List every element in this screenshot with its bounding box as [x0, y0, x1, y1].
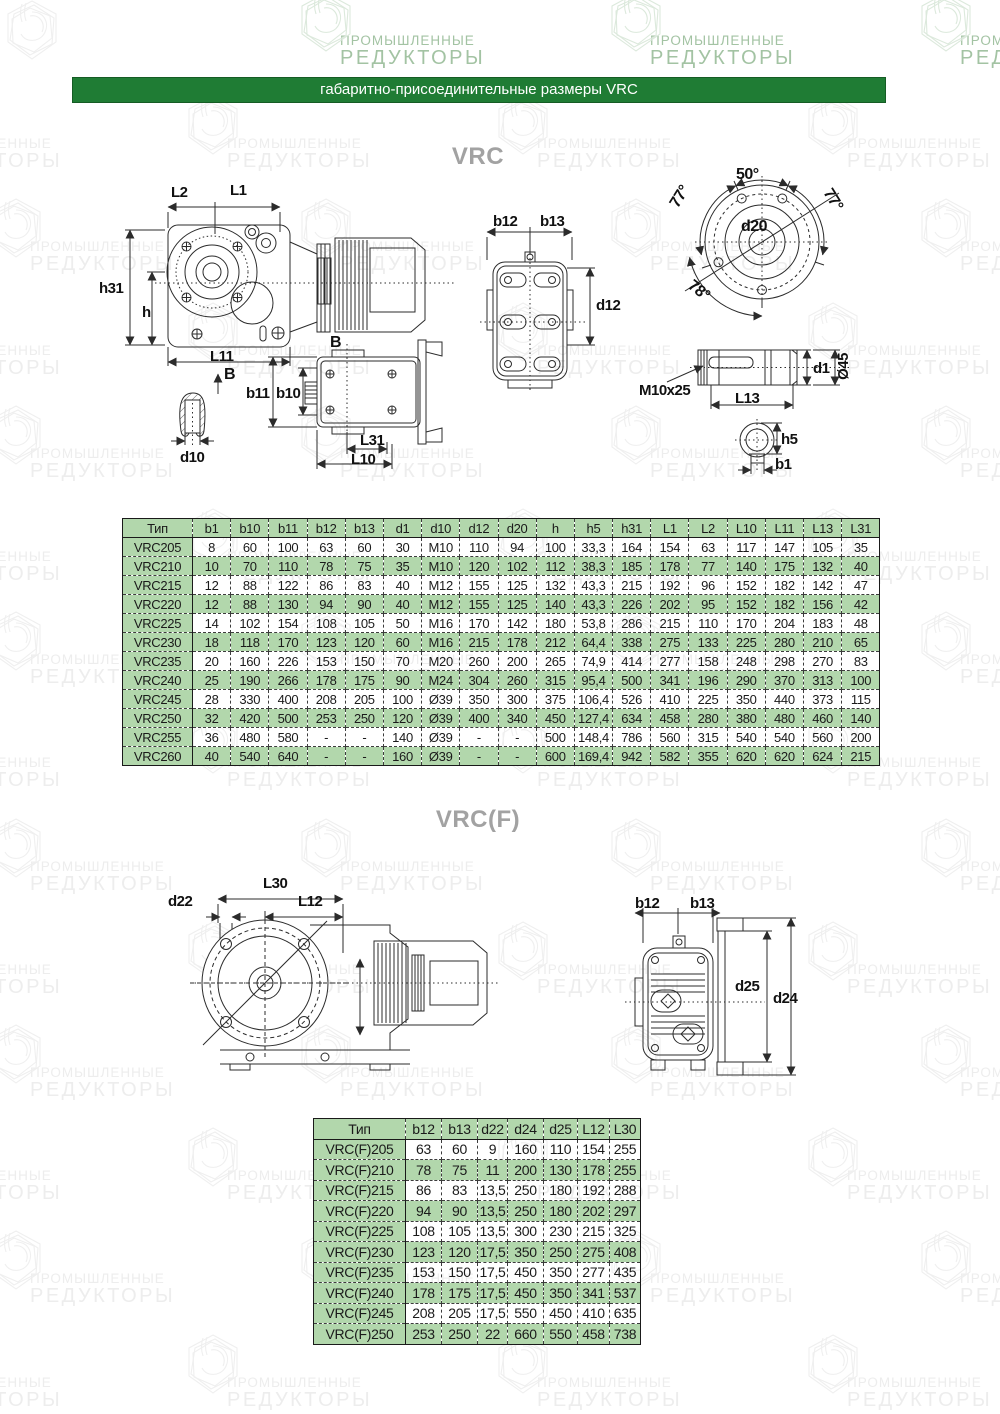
value-cell: 215 — [613, 576, 651, 595]
value-cell: 152 — [727, 576, 765, 595]
value-cell: 178 — [307, 671, 345, 690]
value-cell: 540 — [727, 728, 765, 747]
value-cell: 313 — [804, 671, 842, 690]
value-cell: 408 — [610, 1242, 641, 1263]
value-cell: 178 — [498, 633, 536, 652]
value-cell: 192 — [578, 1180, 610, 1201]
value-cell: 130 — [269, 595, 307, 614]
value-cell: M16 — [422, 614, 460, 633]
watermark: ПРОМЫШЛЕННЫЕ РЕДУКТОРЫ — [650, 34, 825, 69]
value-cell: 115 — [842, 690, 880, 709]
dim-label-b1: b1 — [775, 456, 792, 473]
type-cell: VRC240 — [123, 671, 193, 690]
type-cell: VRC(F)235 — [314, 1262, 406, 1283]
table-row-VRC(F)205: VRC(F)20563609160110154255 — [314, 1139, 641, 1160]
brand-logo-icon — [181, 1125, 245, 1189]
type-cell: VRC(F)245 — [314, 1303, 406, 1324]
value-cell: 158 — [689, 652, 727, 671]
value-cell: 17,5 — [478, 1262, 508, 1283]
dim-label-b12-f: b12 — [635, 895, 659, 912]
table-row-VRC(F)210: VRC(F)210787511200130178255 — [314, 1160, 641, 1181]
brand-logo-icon — [294, 0, 358, 54]
brand-logo-icon — [914, 196, 978, 260]
value-cell: 225 — [727, 633, 765, 652]
watermark-line2: РЕДУКТОРЫ — [0, 564, 92, 585]
watermark-line2: РЕДУКТОРЫ — [847, 1183, 1000, 1204]
value-cell: 215 — [842, 747, 880, 766]
value-cell: 50 — [383, 614, 421, 633]
column-header-h5: h5 — [574, 519, 612, 538]
value-cell: 120 — [383, 709, 421, 728]
value-cell: Ø39 — [422, 709, 460, 728]
value-cell: 102 — [498, 557, 536, 576]
column-header-d12: d12 — [460, 519, 498, 538]
vrc-dimensions-table: Типb1b10b11b12b13d1d10d12d20hh5h31L1L2L1… — [122, 518, 880, 766]
column-header-d1: d1 — [383, 519, 421, 538]
value-cell: 77 — [689, 557, 727, 576]
value-cell: M24 — [422, 671, 460, 690]
drawing-vrc-rear-view: b12 b13 d12 — [478, 205, 648, 395]
value-cell: 63 — [406, 1139, 442, 1160]
column-header-d20: d20 — [498, 519, 536, 538]
drawing-vrc-shaft-section: h5 b1 — [725, 415, 815, 480]
value-cell: 253 — [307, 709, 345, 728]
value-cell: 460 — [804, 709, 842, 728]
value-cell: 43,3 — [574, 576, 612, 595]
value-cell: 94 — [406, 1201, 442, 1222]
type-cell: VRC230 — [123, 633, 193, 652]
type-cell: VRC(F)205 — [314, 1139, 406, 1160]
value-cell: 420 — [231, 709, 269, 728]
table-row-VRC(F)230: VRC(F)23012312017,5350250275408 — [314, 1242, 641, 1263]
value-cell: 288 — [610, 1180, 641, 1201]
watermark: ПРОМЫШЛЕННЫЕ РЕДУКТОРЫ — [537, 1376, 712, 1411]
brand-logo-icon — [0, 816, 48, 880]
value-cell: 142 — [804, 576, 842, 595]
watermark-line2: РЕДУКТОРЫ — [960, 461, 1000, 482]
value-cell: 14 — [193, 614, 231, 633]
value-cell: 200 — [498, 652, 536, 671]
value-cell: 255 — [610, 1160, 641, 1181]
value-cell: 9 — [478, 1139, 508, 1160]
watermark-line1: ПРОМЫШЛЕННЫЕ — [960, 34, 1000, 48]
value-cell: 160 — [231, 652, 269, 671]
value-cell: 38,3 — [574, 557, 612, 576]
value-cell: 192 — [651, 576, 689, 595]
value-cell: 127,4 — [574, 709, 612, 728]
watermark-line2: РЕДУКТОРЫ — [650, 48, 825, 69]
table-row-VRC220: VRC2201288130949040M1215512514043,322620… — [123, 595, 880, 614]
value-cell: 350 — [544, 1283, 578, 1304]
value-cell: 120 — [460, 557, 498, 576]
value-cell: 90 — [383, 671, 421, 690]
watermark-line2: РЕДУКТОРЫ — [847, 358, 1000, 379]
watermark-line2: РЕДУКТОРЫ — [30, 1286, 205, 1307]
watermark-line1: ПРОМЫШЛЕННЫЕ — [847, 1376, 1000, 1390]
watermark: ПРОМЫШЛЕННЫЕ РЕДУКТОРЫ — [847, 137, 1000, 172]
value-cell: 340 — [498, 709, 536, 728]
value-cell: 620 — [727, 747, 765, 766]
brand-logo-icon — [914, 403, 978, 467]
dim-label-d1: d1 — [813, 360, 830, 377]
value-cell: 25 — [193, 671, 231, 690]
value-cell: - — [307, 728, 345, 747]
value-cell: 341 — [651, 671, 689, 690]
value-cell: 105 — [442, 1221, 478, 1242]
type-cell: VRC245 — [123, 690, 193, 709]
value-cell: 125 — [498, 595, 536, 614]
watermark: ПРОМЫШЛЕННЫЕ РЕДУКТОРЫ — [0, 1376, 92, 1411]
value-cell: 200 — [508, 1160, 544, 1181]
type-cell: VRC220 — [123, 595, 193, 614]
value-cell: 370 — [765, 671, 803, 690]
watermark-line1: ПРОМЫШЛЕННЫЕ — [650, 34, 825, 48]
column-header-L10: L10 — [727, 519, 765, 538]
watermark-line1: ПРОМЫШЛЕННЫЕ — [650, 860, 825, 874]
value-cell: 110 — [544, 1139, 578, 1160]
value-cell: 105 — [345, 614, 383, 633]
value-cell: 35 — [842, 538, 880, 557]
value-cell: 53,8 — [574, 614, 612, 633]
value-cell: 204 — [765, 614, 803, 633]
vrc-table-header: Типb1b10b11b12b13d1d10d12d20hh5h31L1L2L1… — [123, 519, 880, 538]
column-header-d10: d10 — [422, 519, 460, 538]
value-cell: 226 — [269, 652, 307, 671]
value-cell: 255 — [610, 1139, 641, 1160]
value-cell: 90 — [442, 1201, 478, 1222]
watermark-line2: РЕДУКТОРЫ — [960, 667, 1000, 688]
type-cell: VRC225 — [123, 614, 193, 633]
angle-label-50: 50° — [736, 166, 759, 184]
dim-label-d20: d20 — [741, 218, 767, 236]
type-cell: VRC260 — [123, 747, 193, 766]
value-cell: 304 — [460, 671, 498, 690]
type-cell: VRC250 — [123, 709, 193, 728]
value-cell: 183 — [804, 614, 842, 633]
dim-label-d22: d22 — [168, 893, 192, 910]
value-cell: M10 — [422, 557, 460, 576]
value-cell: 100 — [269, 538, 307, 557]
table-row-VRC215: VRC2151288122868340M1215512513243,321519… — [123, 576, 880, 595]
section-title-vrc: VRC — [378, 143, 578, 171]
watermark-line1: ПРОМЫШЛЕННЫЕ — [340, 34, 515, 48]
value-cell: 410 — [578, 1303, 610, 1324]
value-cell: 350 — [508, 1242, 544, 1263]
brand-logo-icon — [914, 1022, 978, 1086]
value-cell: 117 — [727, 538, 765, 557]
value-cell: 132 — [804, 557, 842, 576]
dim-label-L10: L10 — [351, 451, 375, 468]
value-cell: M12 — [422, 595, 460, 614]
watermark-line2: РЕДУКТОРЫ — [960, 1286, 1000, 1307]
vrcf-side-view-linework — [160, 855, 510, 1100]
column-header-L1: L1 — [651, 519, 689, 538]
value-cell: - — [460, 747, 498, 766]
column-header-b12: b12 — [406, 1119, 442, 1140]
drawing-vrcf-side-view: L30 d22 L12 — [160, 855, 510, 1100]
drawing-vrc-key-section: d10 — [150, 385, 225, 480]
value-cell: 250 — [544, 1242, 578, 1263]
watermark-line1: ПРОМЫШЛЕННЫЕ — [847, 137, 1000, 151]
watermark: ПРОМЫШЛЕННЫЕ РЕДУКТОРЫ — [960, 653, 1000, 688]
value-cell: 12 — [193, 576, 231, 595]
value-cell: 86 — [307, 576, 345, 595]
value-cell: 450 — [508, 1283, 544, 1304]
vrcf-table-header: Типb12b13d22d24d25L12L30 — [314, 1119, 641, 1140]
watermark-line1: ПРОМЫШЛЕННЫЕ — [0, 1169, 92, 1183]
value-cell: - — [345, 747, 383, 766]
value-cell: 133 — [689, 633, 727, 652]
value-cell: 660 — [508, 1324, 544, 1345]
watermark-line1: ПРОМЫШЛЕННЫЕ — [0, 137, 92, 151]
table-row-VRC(F)240: VRC(F)24017817517,5450350341537 — [314, 1283, 641, 1304]
value-cell: 208 — [307, 690, 345, 709]
value-cell: 275 — [578, 1242, 610, 1263]
value-cell: 64,4 — [574, 633, 612, 652]
table-row-VRC225: VRC2251410215410810550M1617014218053,828… — [123, 614, 880, 633]
catalog-page: ПРОМЫШЛЕННЫЕ РЕДУКТОРЫ ПРОМЫШЛЕННЫЕ РЕДУ… — [0, 0, 1000, 1414]
brand-logo-icon — [801, 1332, 865, 1396]
watermark-line1: ПРОМЫШЛЕННЫЕ — [227, 137, 402, 151]
value-cell: 120 — [345, 633, 383, 652]
value-cell: 250 — [508, 1201, 544, 1222]
watermark: ПРОМЫШЛЕННЫЕ РЕДУКТОРЫ — [0, 137, 92, 172]
value-cell: 182 — [765, 595, 803, 614]
value-cell: 580 — [269, 728, 307, 747]
value-cell: 100 — [842, 671, 880, 690]
value-cell: 175 — [442, 1283, 478, 1304]
value-cell: 180 — [544, 1180, 578, 1201]
value-cell: Ø39 — [422, 747, 460, 766]
value-cell: 88 — [231, 595, 269, 614]
value-cell: 315 — [536, 671, 574, 690]
watermark-line2: РЕДУКТОРЫ — [227, 1390, 402, 1411]
value-cell: 230 — [544, 1221, 578, 1242]
brand-logo-icon — [801, 1125, 865, 1189]
column-header-b10: b10 — [231, 519, 269, 538]
value-cell: 480 — [231, 728, 269, 747]
table-row-VRC(F)235: VRC(F)23515315017,5450350277435 — [314, 1262, 641, 1283]
value-cell: 550 — [544, 1324, 578, 1345]
value-cell: 100 — [383, 690, 421, 709]
value-cell: 205 — [345, 690, 383, 709]
value-cell: 78 — [307, 557, 345, 576]
value-cell: 110 — [269, 557, 307, 576]
value-cell: - — [307, 747, 345, 766]
value-cell: 350 — [727, 690, 765, 709]
value-cell: 13,5 — [478, 1180, 508, 1201]
watermark-line1: ПРОМЫШЛЕННЫЕ — [537, 1376, 712, 1390]
value-cell: 225 — [689, 690, 727, 709]
value-cell: 260 — [498, 671, 536, 690]
watermark-line2: РЕДУКТОРЫ — [0, 977, 92, 998]
value-cell: 560 — [651, 728, 689, 747]
value-cell: 122 — [269, 576, 307, 595]
watermark: ПРОМЫШЛЕННЫЕ РЕДУКТОРЫ — [227, 137, 402, 172]
value-cell: 635 — [610, 1303, 641, 1324]
value-cell: 298 — [765, 652, 803, 671]
value-cell: 338 — [613, 633, 651, 652]
watermark: ПРОМЫШЛЕННЫЕ РЕДУКТОРЫ — [0, 963, 92, 998]
drawing-vrcf-rear-view: b12 b13 d25 d24 — [605, 878, 870, 1093]
value-cell: - — [498, 747, 536, 766]
watermark-line1: ПРОМЫШЛЕННЫЕ — [960, 1066, 1000, 1080]
watermark-line2: РЕДУКТОРЫ — [847, 1390, 1000, 1411]
value-cell: 150 — [345, 652, 383, 671]
value-cell: 75 — [345, 557, 383, 576]
value-cell: 212 — [536, 633, 574, 652]
value-cell: - — [460, 728, 498, 747]
watermark-line1: ПРОМЫШЛЕННЫЕ — [960, 1272, 1000, 1286]
value-cell: 458 — [651, 709, 689, 728]
value-cell: 88 — [231, 576, 269, 595]
value-cell: 60 — [345, 538, 383, 557]
value-cell: 202 — [651, 595, 689, 614]
watermark: ПРОМЫШЛЕННЫЕ РЕДУКТОРЫ — [847, 344, 1000, 379]
value-cell: - — [345, 728, 383, 747]
value-cell: 40 — [193, 747, 231, 766]
value-cell: M10 — [422, 538, 460, 557]
table-row-VRC210: VRC2101070110787535M1012010211238,318517… — [123, 557, 880, 576]
watermark-line1: ПРОМЫШЛЕННЫЕ — [960, 447, 1000, 461]
brand-logo-icon — [0, 403, 48, 467]
type-cell: VRC255 — [123, 728, 193, 747]
value-cell: 600 — [536, 747, 574, 766]
value-cell: 280 — [765, 633, 803, 652]
value-cell: 526 — [613, 690, 651, 709]
watermark: ПРОМЫШЛЕННЫЕ РЕДУКТОРЫ — [960, 860, 1000, 895]
value-cell: 43,3 — [574, 595, 612, 614]
table-row-VRC235: VRC2352016022615315070M2026020026574,941… — [123, 652, 880, 671]
dim-label-b11: b11 — [246, 385, 270, 402]
watermark-line2: РЕДУКТОРЫ — [537, 1390, 712, 1411]
watermark-line2: РЕДУКТОРЫ — [960, 48, 1000, 69]
dim-label-d12: d12 — [596, 297, 620, 314]
dim-label-thread-M10x25: M10x25 — [639, 382, 690, 399]
value-cell: 83 — [842, 652, 880, 671]
value-cell: 500 — [269, 709, 307, 728]
value-cell: 154 — [651, 538, 689, 557]
value-cell: 634 — [613, 709, 651, 728]
watermark-line1: ПРОМЫШЛЕННЫЕ — [0, 550, 92, 564]
value-cell: 140 — [727, 557, 765, 576]
value-cell: 125 — [498, 576, 536, 595]
value-cell: 182 — [765, 576, 803, 595]
value-cell: 108 — [307, 614, 345, 633]
value-cell: 60 — [383, 633, 421, 652]
value-cell: 640 — [269, 747, 307, 766]
column-header-b1: b1 — [193, 519, 231, 538]
value-cell: 450 — [508, 1262, 544, 1283]
value-cell: 154 — [269, 614, 307, 633]
value-cell: 250 — [345, 709, 383, 728]
value-cell: 28 — [193, 690, 231, 709]
value-cell: 253 — [406, 1324, 442, 1345]
column-header-d22: d22 — [478, 1119, 508, 1140]
value-cell: 537 — [610, 1283, 641, 1304]
value-cell: 250 — [508, 1180, 544, 1201]
value-cell: 178 — [406, 1283, 442, 1304]
dim-label-L13: L13 — [735, 390, 759, 407]
value-cell: 153 — [406, 1262, 442, 1283]
watermark: ПРОМЫШЛЕННЫЕ РЕДУКТОРЫ — [0, 756, 92, 791]
table-row-VRC240: VRC2402519026617817590M2430426031595,450… — [123, 671, 880, 690]
value-cell: 40 — [842, 557, 880, 576]
value-cell: 175 — [765, 557, 803, 576]
watermark: ПРОМЫШЛЕННЫЕ РЕДУКТОРЫ — [227, 1376, 402, 1411]
value-cell: 330 — [231, 690, 269, 709]
value-cell: 70 — [231, 557, 269, 576]
value-cell: 120 — [442, 1242, 478, 1263]
watermark-line1: ПРОМЫШЛЕННЫЕ — [960, 653, 1000, 667]
value-cell: 10 — [193, 557, 231, 576]
watermark-line2: РЕДУКТОРЫ — [847, 151, 1000, 172]
value-cell: M12 — [422, 576, 460, 595]
value-cell: 94 — [307, 595, 345, 614]
watermark: ПРОМЫШЛЕННЫЕ РЕДУКТОРЫ — [0, 550, 92, 585]
brand-logo-icon — [604, 0, 668, 54]
value-cell: 215 — [651, 614, 689, 633]
drawing-vrc-flange-angles: 50° 77° 77° 78° d20 — [655, 158, 865, 330]
vrc-flange-linework — [655, 158, 865, 330]
value-cell: 786 — [613, 728, 651, 747]
value-cell: 440 — [765, 690, 803, 709]
table-row-VRC(F)215: VRC(F)215868313,5250180192288 — [314, 1180, 641, 1201]
column-header-d24: d24 — [508, 1119, 544, 1140]
value-cell: 350 — [460, 690, 498, 709]
type-cell: VRC205 — [123, 538, 193, 557]
value-cell: M20 — [422, 652, 460, 671]
value-cell: 341 — [578, 1283, 610, 1304]
value-cell: 36 — [193, 728, 231, 747]
value-cell: 8 — [193, 538, 231, 557]
value-cell: 450 — [544, 1303, 578, 1324]
value-cell: 147 — [765, 538, 803, 557]
type-cell: VRC(F)250 — [314, 1324, 406, 1345]
value-cell: 132 — [536, 576, 574, 595]
value-cell: 375 — [536, 690, 574, 709]
value-cell: M16 — [422, 633, 460, 652]
value-cell: 550 — [508, 1303, 544, 1324]
value-cell: 435 — [610, 1262, 641, 1283]
value-cell: 153 — [307, 652, 345, 671]
value-cell: 96 — [689, 576, 727, 595]
value-cell: 280 — [689, 709, 727, 728]
value-cell: 17,5 — [478, 1242, 508, 1263]
value-cell: 13,5 — [478, 1201, 508, 1222]
column-header-Тип: Тип — [314, 1119, 406, 1140]
value-cell: 250 — [442, 1324, 478, 1345]
watermark-line1: ПРОМЫШЛЕННЫЕ — [30, 1272, 205, 1286]
value-cell: 270 — [804, 652, 842, 671]
value-cell: 40 — [383, 576, 421, 595]
value-cell: 70 — [383, 652, 421, 671]
value-cell: 290 — [727, 671, 765, 690]
value-cell: 500 — [613, 671, 651, 690]
value-cell: 112 — [536, 557, 574, 576]
value-cell: 108 — [406, 1221, 442, 1242]
watermark-line1: ПРОМЫШЛЕННЫЕ — [960, 860, 1000, 874]
watermark: ПРОМЫШЛЕННЫЕ РЕДУКТОРЫ — [960, 1066, 1000, 1101]
type-cell: VRC(F)210 — [314, 1160, 406, 1181]
vrc-shaft-section-linework — [725, 415, 815, 480]
value-cell: 47 — [842, 576, 880, 595]
drawing-vrc-bottom-view: B b11 b10 L31 L10 — [240, 332, 470, 480]
value-cell: 380 — [727, 709, 765, 728]
column-header-L13: L13 — [804, 519, 842, 538]
column-header-h31: h31 — [613, 519, 651, 538]
value-cell: 540 — [765, 728, 803, 747]
